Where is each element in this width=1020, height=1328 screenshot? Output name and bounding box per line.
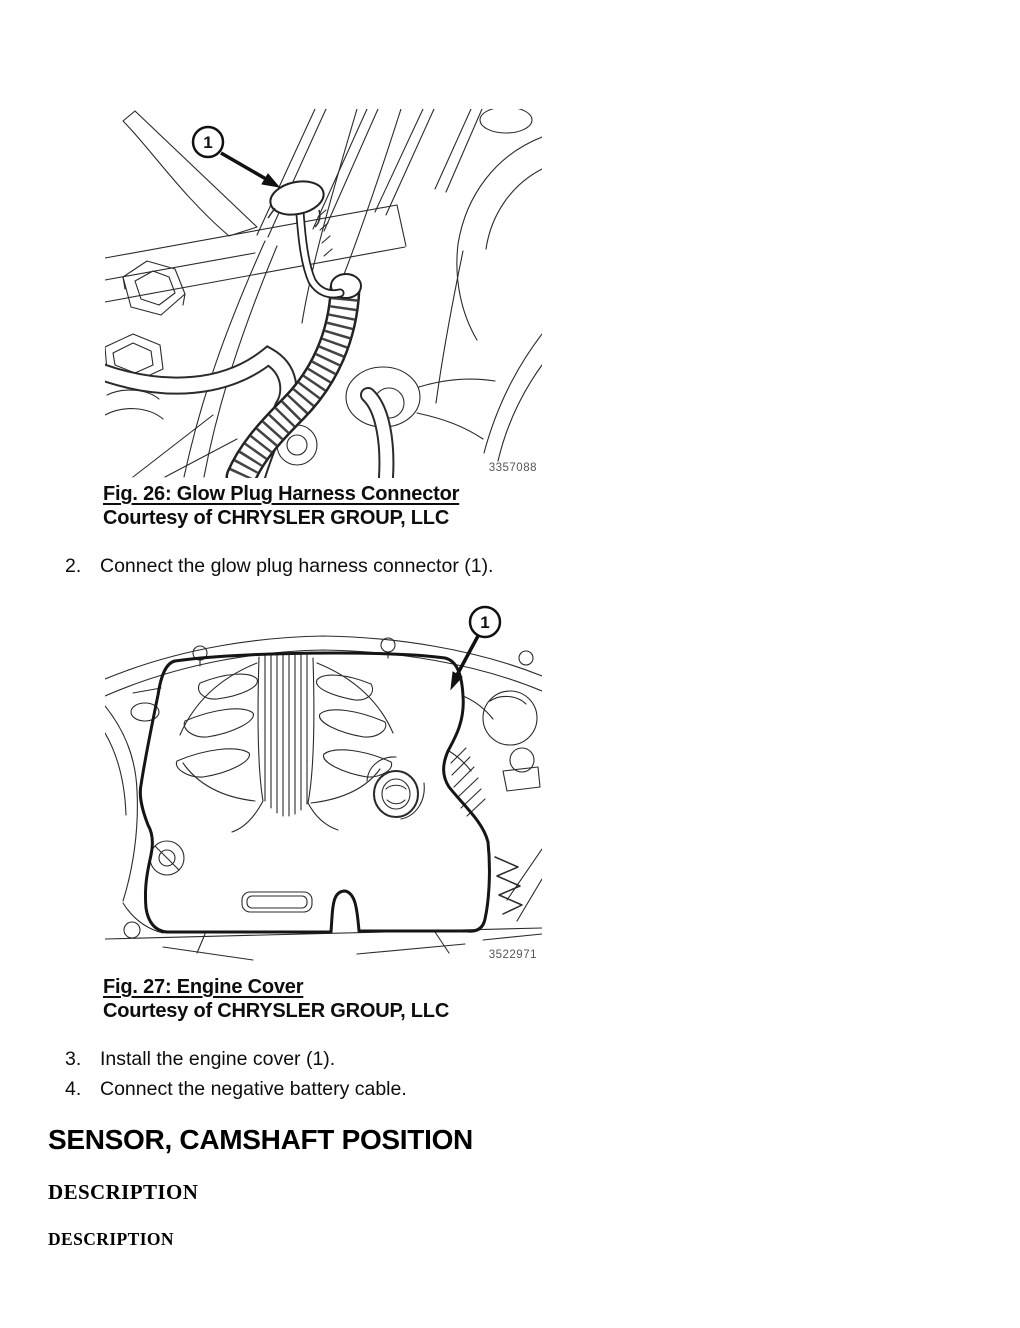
engine-bay-background bbox=[105, 636, 542, 960]
fig-26-caption-courtesy: Courtesy of CHRYSLER GROUP, LLC bbox=[103, 506, 459, 530]
fig-27-caption-courtesy: Courtesy of CHRYSLER GROUP, LLC bbox=[103, 999, 449, 1023]
fig-27-line-art: 1 3522971 bbox=[105, 601, 542, 965]
callout-1-badge: 1 bbox=[470, 607, 500, 637]
section-heading: SENSOR, CAMSHAFT POSITION bbox=[48, 1124, 473, 1156]
fig-27-caption-title: Fig. 27: Engine Cover bbox=[103, 975, 449, 999]
service-manual-page: 1 3357088 Fig. 26: Glow Plug Harness Con… bbox=[0, 0, 1020, 1328]
step-number: 4. bbox=[65, 1078, 81, 1101]
callout-1-label: 1 bbox=[203, 133, 212, 152]
callout-1-label: 1 bbox=[480, 613, 489, 632]
step-text: Install the engine cover (1). bbox=[100, 1048, 335, 1071]
glow-plug-harness-conduit bbox=[241, 274, 361, 477]
subsection-heading: DESCRIPTION bbox=[48, 1180, 198, 1205]
figure-id-number: 3357088 bbox=[489, 462, 537, 474]
step-number: 2. bbox=[65, 555, 81, 578]
step-text: Connect the negative battery cable. bbox=[100, 1078, 407, 1101]
step-row: 2. Connect the glow plug harness connect… bbox=[0, 555, 1020, 579]
callout-arrow bbox=[451, 636, 478, 689]
step-row: 4. Connect the negative battery cable. bbox=[0, 1078, 1020, 1102]
figure-id-number: 3522971 bbox=[489, 949, 537, 961]
fig-27-caption: Fig. 27: Engine Cover Courtesy of CHRYSL… bbox=[103, 975, 449, 1023]
engine-cover-detail bbox=[176, 653, 424, 912]
engine-cover-outline bbox=[140, 653, 489, 932]
fig-26-caption-title: Fig. 26: Glow Plug Harness Connector bbox=[103, 482, 459, 506]
fig-26-line-art: 1 3357088 bbox=[105, 109, 542, 478]
step-number: 3. bbox=[65, 1048, 81, 1071]
step-text: Connect the glow plug harness connector … bbox=[100, 555, 493, 578]
subsubsection-heading: DESCRIPTION bbox=[48, 1229, 174, 1250]
callout-arrow bbox=[221, 153, 279, 187]
callout-1-badge: 1 bbox=[193, 127, 223, 157]
step-row: 3. Install the engine cover (1). bbox=[0, 1048, 1020, 1072]
fig-26-caption: Fig. 26: Glow Plug Harness Connector Cou… bbox=[103, 482, 459, 530]
